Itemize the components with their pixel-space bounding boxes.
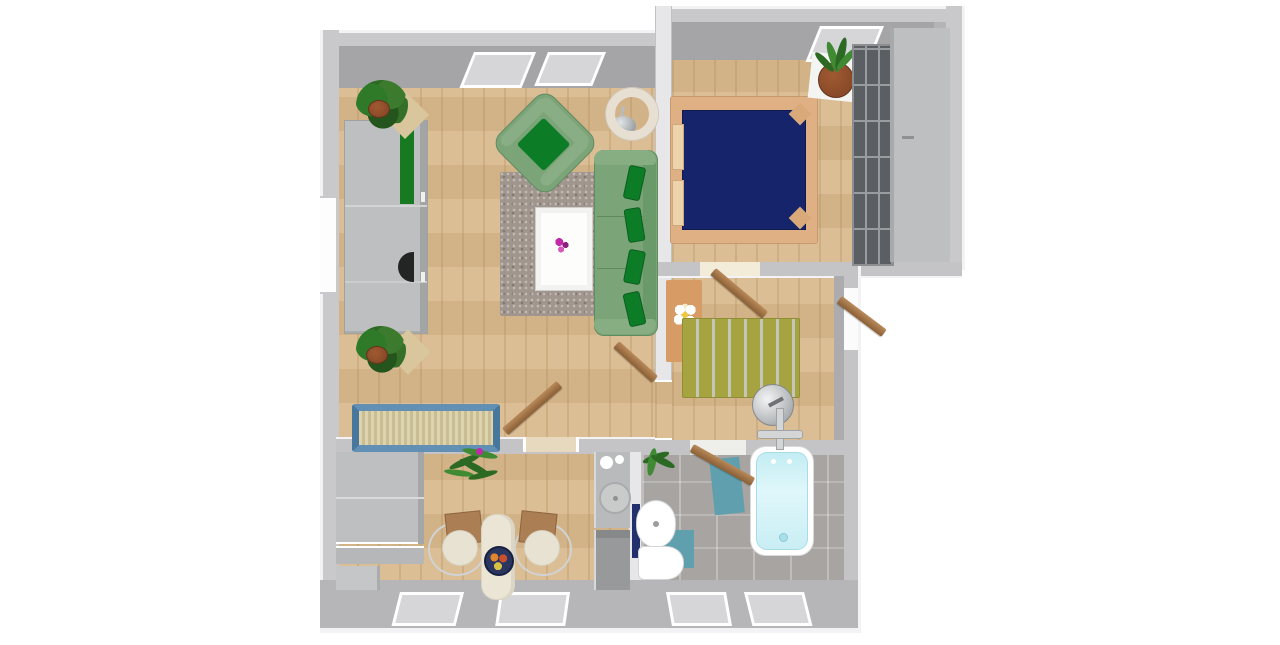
fan-stem bbox=[776, 408, 784, 450]
kitchen-stove-counter[interactable] bbox=[594, 452, 630, 528]
ring-floor-lamp[interactable] bbox=[606, 88, 658, 140]
bed-navy-cover[interactable] bbox=[682, 110, 806, 230]
wardrobe-seam bbox=[345, 205, 427, 207]
stove-burner bbox=[615, 455, 624, 464]
wardrobe-handle bbox=[902, 136, 914, 139]
kitchen-window-1 bbox=[392, 592, 464, 626]
bathroom-window-1 bbox=[666, 592, 732, 626]
doorway-living-room-kitchen bbox=[523, 437, 579, 452]
stove-burner bbox=[600, 456, 613, 469]
bathroom-plant[interactable] bbox=[638, 446, 678, 486]
toilet[interactable] bbox=[638, 546, 684, 580]
fruit-bowl[interactable] bbox=[484, 546, 514, 576]
wardrobe-green-door[interactable] bbox=[400, 128, 414, 204]
doorway-bedroom bbox=[700, 262, 760, 276]
floorplan-canvas bbox=[0, 0, 1280, 645]
sofa-armrest bbox=[594, 319, 656, 334]
green-sofa[interactable] bbox=[594, 150, 656, 334]
sofa-armrest bbox=[594, 150, 656, 165]
sink-faucet bbox=[653, 521, 659, 527]
kitchen-cabinet-low[interactable] bbox=[336, 566, 380, 590]
cabinet-seam bbox=[336, 497, 424, 499]
sofa-backrest bbox=[643, 150, 656, 334]
doorway-entrance bbox=[844, 288, 858, 350]
bathroom-sink[interactable] bbox=[636, 500, 676, 548]
wardrobe-handle bbox=[421, 192, 425, 202]
bed-pillow bbox=[672, 124, 684, 170]
kitchen-cabinet-mid[interactable] bbox=[336, 546, 424, 564]
kitchen-hanging-plant[interactable] bbox=[440, 440, 510, 492]
plant-pot bbox=[368, 100, 390, 118]
kitchen-chair-left[interactable] bbox=[442, 530, 478, 566]
fan-base bbox=[757, 430, 803, 439]
kitchen-cabinet-block[interactable] bbox=[336, 452, 424, 544]
flower-vase bbox=[553, 235, 571, 255]
bathtub[interactable] bbox=[750, 446, 814, 556]
kitchen-chair-right[interactable] bbox=[524, 530, 560, 566]
wardrobe-handle bbox=[421, 272, 425, 282]
bedroom-wardrobe[interactable] bbox=[890, 28, 950, 262]
kitchen-sink bbox=[599, 482, 631, 514]
bedroom-shelf-unit[interactable] bbox=[852, 44, 894, 266]
plant-flower bbox=[476, 448, 483, 455]
bed-pillow bbox=[672, 180, 684, 226]
doorway-living-room-hallway bbox=[655, 380, 672, 440]
tub-faucet bbox=[787, 459, 792, 464]
wardrobe-seam bbox=[345, 281, 427, 283]
bedroom-plant-pot[interactable] bbox=[818, 62, 854, 98]
coffee-table[interactable] bbox=[536, 208, 592, 290]
living-room-wardrobe[interactable] bbox=[344, 120, 428, 334]
bathtub-basin bbox=[756, 452, 808, 550]
bathroom-window-2 bbox=[744, 592, 812, 626]
living-room-side-window bbox=[320, 196, 336, 294]
plant-pot bbox=[366, 346, 388, 364]
kitchen-lower-counter[interactable] bbox=[594, 530, 630, 590]
sink-drain bbox=[613, 496, 618, 501]
tub-drain bbox=[779, 533, 788, 542]
tub-faucet bbox=[771, 459, 776, 464]
